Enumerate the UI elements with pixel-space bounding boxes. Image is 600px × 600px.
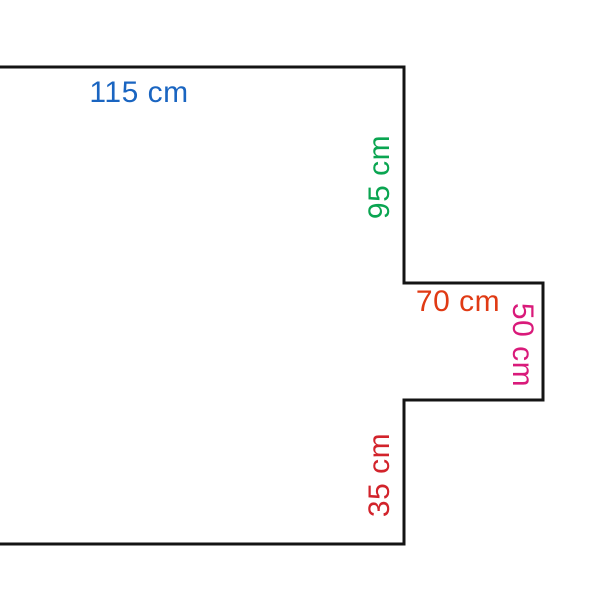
dimension-label-lower-right-height: 35 cm xyxy=(365,433,395,517)
dimension-label-top-width: 115 cm xyxy=(89,78,188,108)
dimension-label-upper-right-height: 95 cm xyxy=(365,135,395,219)
dimension-label-notch-height: 50 cm xyxy=(507,303,537,387)
diagram-canvas: 115 cm 95 cm 70 cm 50 cm 35 cm xyxy=(0,0,600,600)
dimension-label-notch-width: 70 cm xyxy=(416,287,500,317)
